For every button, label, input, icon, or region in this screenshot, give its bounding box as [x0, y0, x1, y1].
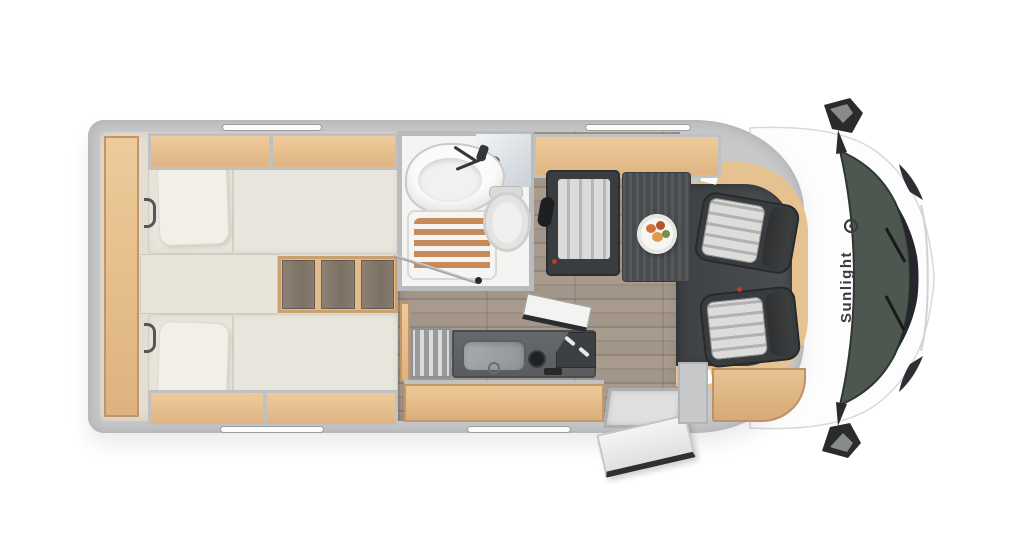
step — [282, 260, 315, 309]
step — [361, 260, 394, 309]
dinette-bench — [546, 170, 620, 276]
seat-backrest — [765, 291, 796, 357]
seat-backrest — [760, 206, 794, 271]
stove-grate-icon — [544, 368, 562, 375]
step — [321, 260, 354, 309]
window-top-rear — [222, 124, 322, 131]
seatbelt-buckle-icon — [737, 287, 742, 292]
food-icon — [662, 230, 670, 238]
door-handle-icon — [475, 277, 482, 284]
overhead-cabinet-bottom-right — [264, 390, 398, 427]
bench-cushion — [558, 179, 610, 259]
bed-steps — [278, 256, 398, 313]
kitchen-cabinet-front — [404, 380, 604, 422]
dish-rack — [411, 328, 451, 378]
stove-knob-icon — [530, 352, 544, 366]
kitchen-side-panel — [400, 302, 410, 382]
brand-logo-text: Sunlight — [838, 251, 855, 323]
window-bottom-rear — [220, 426, 324, 433]
seat-cushion — [706, 297, 768, 361]
sink-drain-icon — [488, 362, 500, 374]
center-console-between-beds — [140, 254, 278, 314]
brand-logo-icon — [849, 224, 853, 228]
seat-cushion — [701, 197, 766, 264]
cab-seat-driver — [698, 285, 801, 369]
toilet — [483, 192, 531, 252]
overhead-cabinet-top-left — [148, 133, 272, 170]
overhead-cabinet-top-right — [270, 133, 398, 170]
seatbelt-buckle-icon — [552, 259, 557, 264]
reading-light-icon — [144, 198, 156, 228]
overhead-cabinet-bottom-left — [148, 390, 266, 427]
reading-light-icon — [144, 323, 156, 353]
food-icon — [656, 221, 665, 230]
sink-basin — [418, 158, 482, 202]
window-top-front — [585, 124, 691, 131]
door-side-pillar — [678, 362, 708, 424]
motorhome-floorplan: Sunlight — [0, 0, 1024, 559]
window-bottom-kitchen — [467, 426, 571, 433]
headboard-shelf — [104, 136, 139, 417]
